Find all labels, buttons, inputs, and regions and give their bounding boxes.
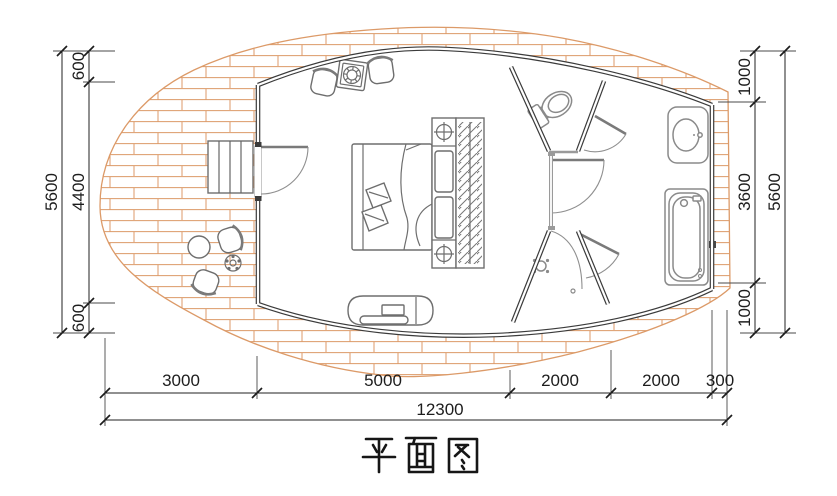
dim-label: 12300 [416, 400, 463, 419]
wash-basin-icon [668, 107, 708, 163]
bench-tv-icon [348, 296, 433, 325]
bed-icon [352, 144, 432, 250]
dim-label: 3600 [735, 173, 754, 211]
dim-label: 5600 [765, 173, 784, 211]
dimension-lines-right: 1000 3600 1000 5600 [718, 46, 796, 338]
dim-label: 1000 [735, 58, 754, 96]
title-glyph-ping [363, 439, 395, 472]
dim-label: 5000 [364, 371, 402, 390]
title-glyph-mian [406, 438, 436, 472]
dim-label: 300 [706, 371, 734, 390]
page-title [363, 438, 477, 472]
dim-label: 2000 [541, 371, 579, 390]
wardrobe-icon [456, 118, 484, 268]
entry-threshold [255, 146, 262, 197]
bathtub-icon [665, 189, 716, 285]
deck-stairs [208, 141, 253, 193]
dim-label: 2000 [642, 371, 680, 390]
title-glyph-tu [449, 439, 477, 472]
dim-label: 600 [69, 52, 88, 80]
floor-plan-page: 5600 600 4400 600 1000 3600 1000 5600 30… [0, 0, 837, 496]
dim-label: 1000 [735, 289, 754, 327]
dim-label: 3000 [162, 371, 200, 390]
dim-label: 5600 [42, 173, 61, 211]
dim-label: 600 [69, 304, 88, 332]
outdoor-table-icon [188, 236, 210, 258]
lounge-chair-icon [366, 55, 395, 84]
grill-table-icon [336, 59, 368, 91]
dim-label: 4400 [69, 173, 88, 211]
floor-plan-drawing: 5600 600 4400 600 1000 3600 1000 5600 30… [0, 0, 837, 496]
nightstand-cabinet-icon [432, 118, 456, 268]
